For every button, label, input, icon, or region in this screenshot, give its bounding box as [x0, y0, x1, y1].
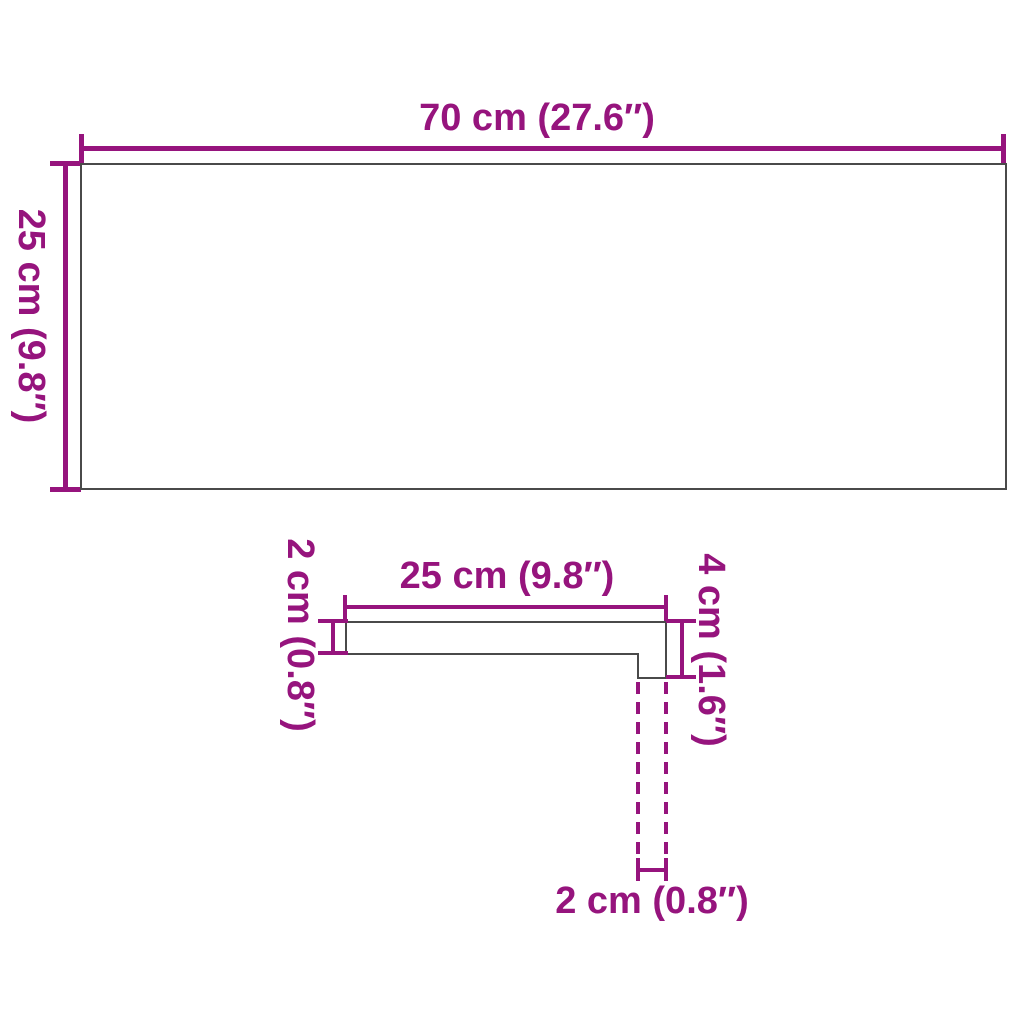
- profile-nose-height-dimension-line: [680, 622, 684, 678]
- dimension-diagram: 70 cm (27.6″) 25 cm (9.8″) 25 cm (9.8″) …: [0, 0, 1024, 1024]
- profile-nose-thickness-dimension-line: [636, 868, 668, 872]
- profile-nose-height-tick-bottom: [666, 675, 696, 679]
- profile-nose-height-label: 4 cm (1.6″): [691, 450, 731, 850]
- profile-board-thickness-tick-top: [318, 619, 348, 623]
- profile-board-thickness-dimension-line: [331, 622, 335, 654]
- profile-nose-height-tick-top: [666, 619, 696, 623]
- profile-board-thickness-label: 2 cm (0.8″): [280, 435, 320, 835]
- profile-nose-projection-dash-right: [664, 682, 668, 856]
- profile-board-outline: [0, 0, 1024, 1024]
- profile-board-thickness-tick-bottom: [318, 651, 348, 655]
- profile-nose-thickness-label: 2 cm (0.8″): [452, 881, 852, 921]
- profile-board-path: [346, 622, 666, 678]
- profile-nose-projection-dash-left: [636, 682, 640, 856]
